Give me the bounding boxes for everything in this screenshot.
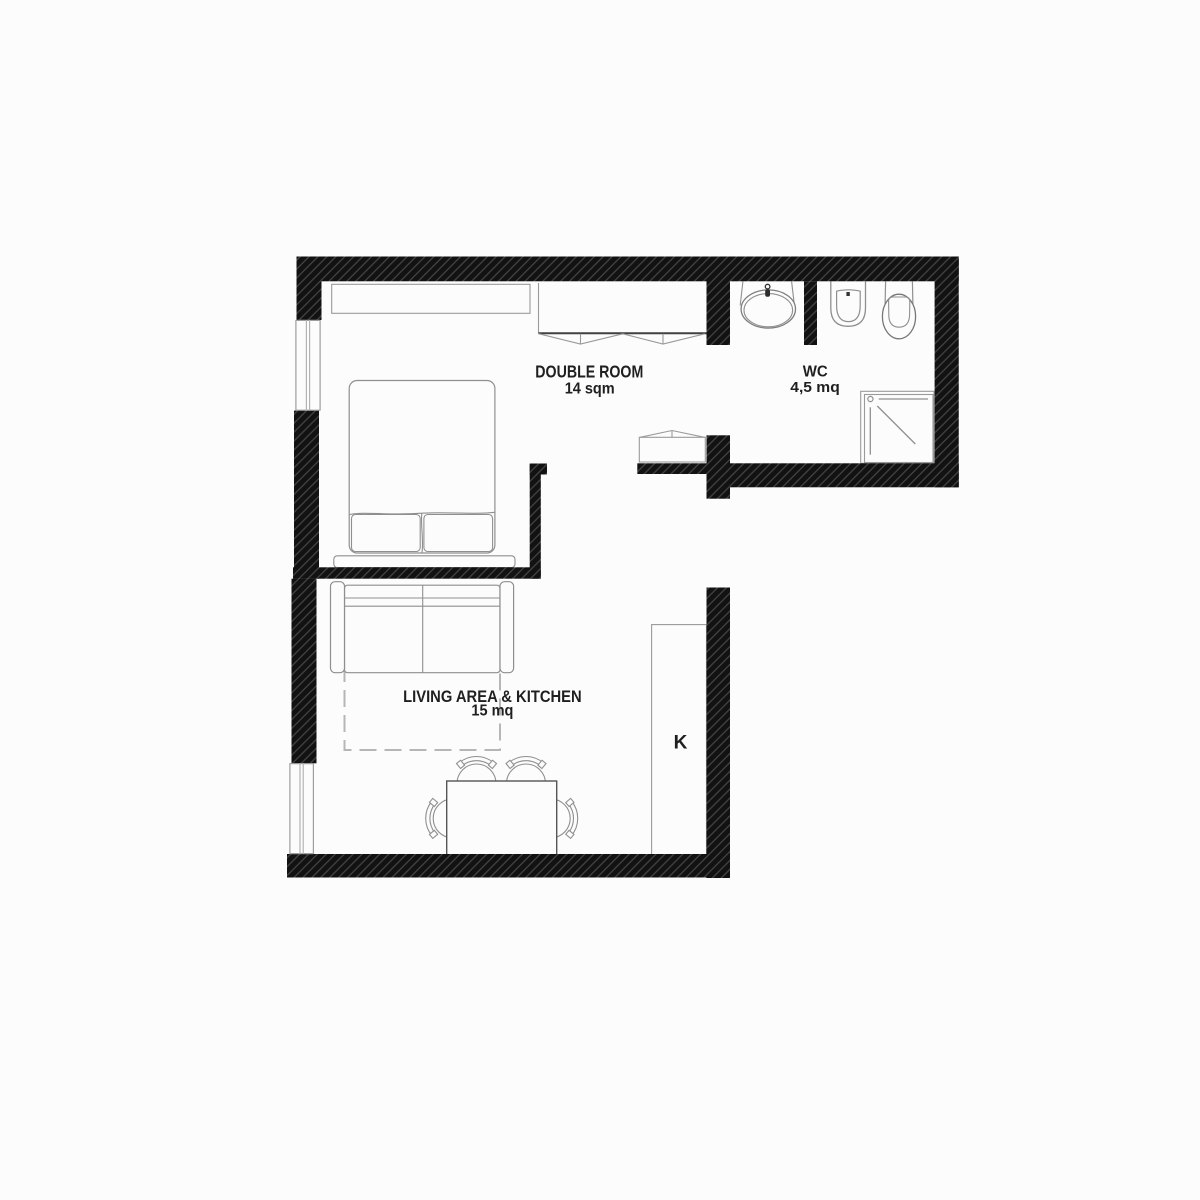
svg-text:15 mq: 15 mq [471,703,513,720]
svg-text:K: K [674,732,688,753]
svg-text:4,5 mq: 4,5 mq [790,379,840,396]
svg-text:14 sqm: 14 sqm [565,380,615,397]
svg-text:DOUBLE ROOM: DOUBLE ROOM [535,361,643,381]
